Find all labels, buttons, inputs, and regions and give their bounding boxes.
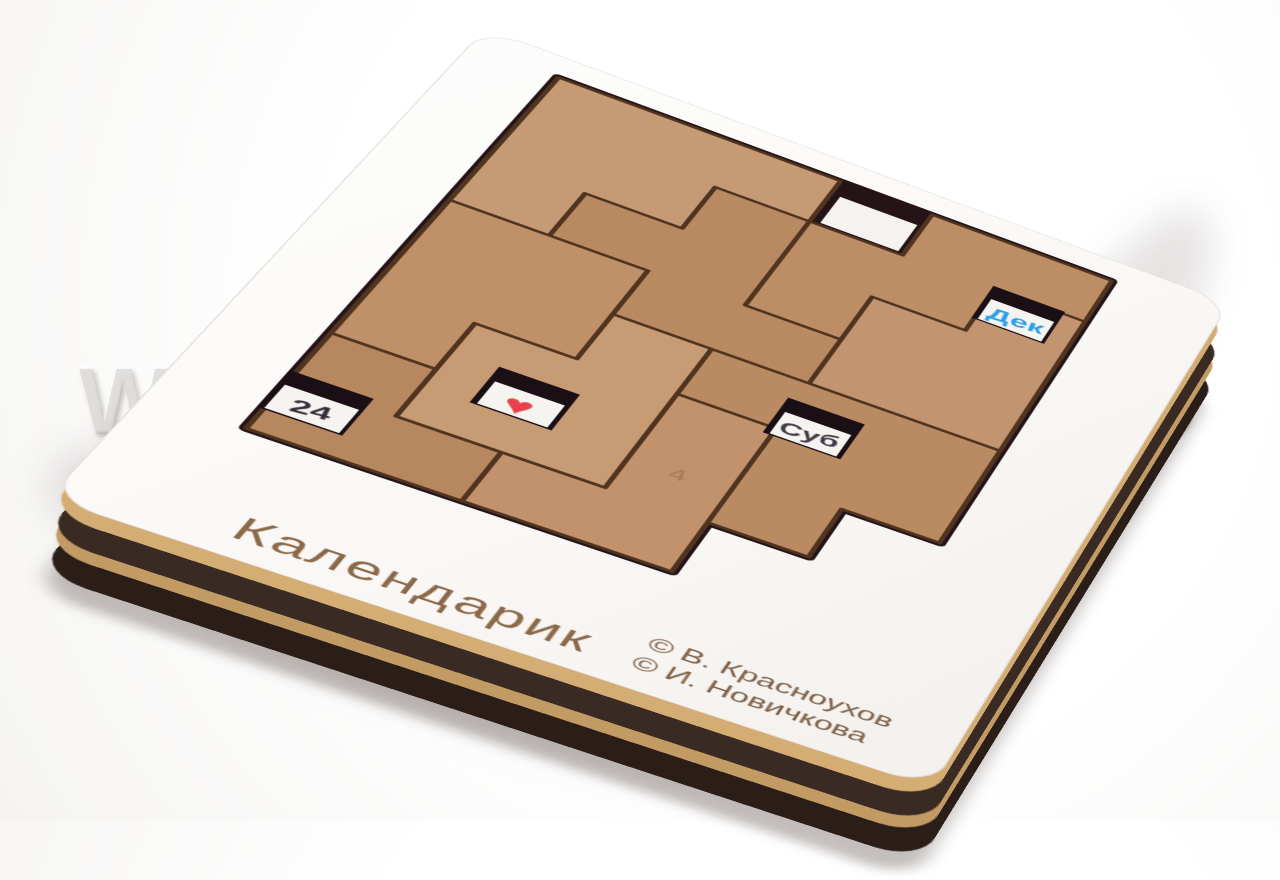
board-face: 4 Дек Суб ♥ 24 <box>47 28 1230 788</box>
puzzle-board: 4 Дек Суб ♥ 24 <box>47 28 1230 788</box>
scene-background: WWW.CLEVER-TOY.RU 4 <box>0 0 1280 821</box>
